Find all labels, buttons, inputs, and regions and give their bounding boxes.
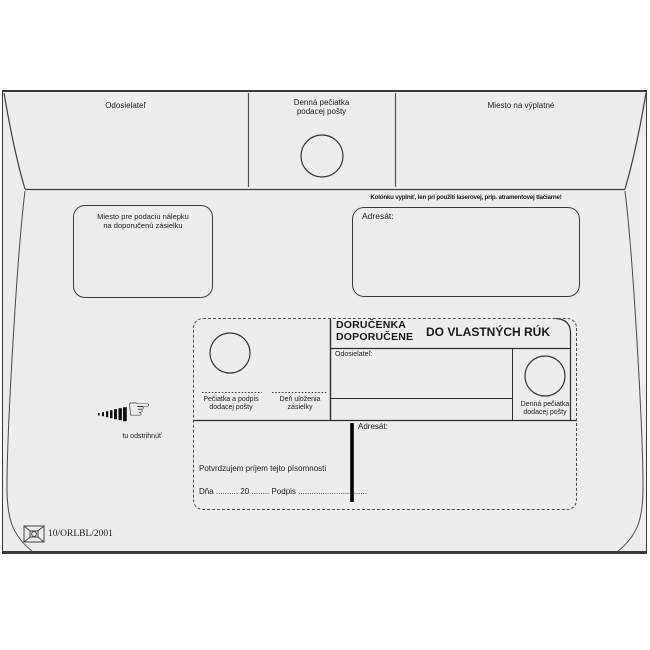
card-addressee-label: Adresát:: [358, 422, 388, 431]
cut-here-label: tu odstrihnúť: [106, 433, 178, 441]
deposit-day-label: Deň uloženia zásielky: [270, 396, 330, 412]
delivery-stamp-label: Denná pečiatka dodacej pošty: [513, 401, 577, 417]
delivery-stamp-label-line1: Denná pečiatka: [513, 401, 577, 409]
deposit-day-label-line1: Deň uloženia: [270, 396, 330, 404]
stamp-signature-label: Pečiatka a podpis dodacej pošty: [196, 396, 266, 412]
posting-stamp-label-line1: Denná pečiatka: [248, 98, 395, 107]
card-title-right: DO VLASTNÝCH RÚK: [403, 326, 573, 340]
addressee-box: Adresát:: [352, 207, 580, 297]
addressee-box-label: Adresát:: [362, 212, 394, 222]
registration-sticker-box: Miesto pre podaciu nálepku na doporučenú…: [73, 205, 213, 298]
registration-sticker-label-line2: na doporučenú zásielku: [74, 222, 212, 231]
delivery-stamp-label-line2: dodacej pošty: [513, 409, 577, 417]
pointing-hand-icon: ☞: [127, 396, 151, 423]
stamp-signature-label-line2: dodacej pošty: [196, 404, 266, 412]
deposit-day-label-line2: zásielky: [270, 404, 330, 412]
stamp-signature-label-line1: Pečiatka a podpis: [196, 396, 266, 404]
form-code: 10/ORLBL/2001: [48, 529, 113, 539]
postage-area-label: Miesto na výplatné: [395, 101, 647, 110]
printer-note: Kolónku vyplniť, len pri použití laserov…: [352, 194, 580, 201]
date-signature-line: Dňa .......... 20 ........ Podpis ......…: [199, 487, 367, 496]
scanned-envelope-page: Odosielateľ Denná pečiatka podacej pošty…: [0, 0, 650, 650]
confirmation-text: Potvrdzujem príjem tejto písomnosti: [199, 464, 326, 473]
registration-sticker-label: Miesto pre podaciu nálepku na doporučenú…: [74, 213, 212, 230]
card-title-line1: DORUČENKA: [336, 319, 406, 331]
card-sender-label: Odosielateľ:: [335, 351, 372, 359]
card-title-line2: DOPORUČENE: [336, 331, 413, 343]
posting-stamp-label: Denná pečiatka podacej pošty: [248, 98, 395, 116]
sender-area-label: Odosielateľ: [3, 101, 248, 110]
posting-stamp-label-line2: podacej pošty: [248, 107, 395, 116]
